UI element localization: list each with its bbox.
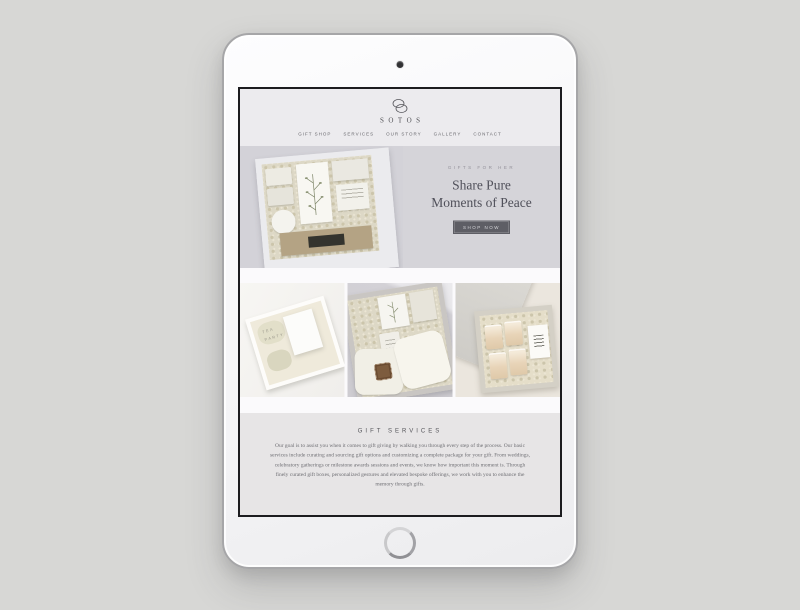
site-header: SOTOS GIFT SHOP SERVICES OUR STORY GALLE… [240,89,560,146]
home-button[interactable] [384,527,416,559]
tablet-device-frame: SOTOS GIFT SHOP SERVICES OUR STORY GALLE… [222,33,578,569]
gallery-item-candle-box [455,283,560,397]
hero-heading-line1: Share Pure [452,178,511,193]
box-filler [479,310,553,388]
kraft-box-label [308,234,345,248]
gallery-item-tea-party: TEA PARTY [240,283,345,397]
botanical-sprig-icon [296,162,333,225]
nav-item-contact[interactable]: CONTACT [473,132,501,137]
candle-tin [265,167,292,186]
gallery-row: TEA PARTY [240,283,560,397]
services-body: Our goal is to assist you when it comes … [270,441,530,489]
front-camera-icon [397,61,404,68]
nav-item-gift-shop[interactable]: GIFT SHOP [298,132,331,137]
card-text-lines [533,335,544,348]
gift-box-illustration [255,147,399,268]
botanical-card [296,162,333,225]
card-text-lines [341,188,364,201]
note-card [336,182,370,211]
gallery-item-blanket-box [348,283,453,397]
glass-candle [508,348,527,375]
section-divider [240,268,560,283]
main-nav: GIFT SHOP SERVICES OUR STORY GALLERY CON… [240,132,560,137]
box-contents [265,347,294,373]
small-white-box [409,289,437,322]
hero-eyebrow: GIFTS FOR HER [403,165,560,170]
botanical-card [377,294,410,330]
page-background: SOTOS GIFT SHOP SERVICES OUR STORY GALLE… [0,0,800,610]
glass-candle [489,352,508,379]
hero-heading: Share Pure Moments of Peace [403,177,560,212]
kraft-box [280,225,374,256]
leather-patch [374,362,393,381]
thank-you-card [527,324,550,359]
nav-item-services[interactable]: SERVICES [343,132,374,137]
botanical-sprig-icon [377,294,410,330]
candle-box-illustration [474,305,559,393]
section-divider [240,397,560,413]
nav-item-our-story[interactable]: OUR STORY [386,132,422,137]
small-white-box [332,158,370,181]
gift-box-filler [262,155,380,260]
hero-heading-line2: Moments of Peace [431,195,531,210]
blanket-box-illustration [348,283,453,397]
brand-logo-icon[interactable] [389,97,412,115]
candle-tin [267,187,294,206]
nav-item-gallery[interactable]: GALLERY [434,132,462,137]
hero-copy: GIFTS FOR HER Share Pure Moments of Peac… [403,146,560,268]
shop-now-button[interactable]: SHOP NOW [453,221,510,235]
gift-services-section: GIFT SERVICES Our goal is to assist you … [240,413,560,515]
round-soap [271,209,297,235]
hero-image [240,146,403,268]
glass-candle [484,324,503,349]
glass-candle [504,320,523,345]
services-heading: GIFT SERVICES [240,427,560,434]
tablet-screen: SOTOS GIFT SHOP SERVICES OUR STORY GALLE… [238,87,562,517]
brand-name[interactable]: SOTOS [240,117,560,125]
hero-section: GIFTS FOR HER Share Pure Moments of Peac… [240,146,560,268]
